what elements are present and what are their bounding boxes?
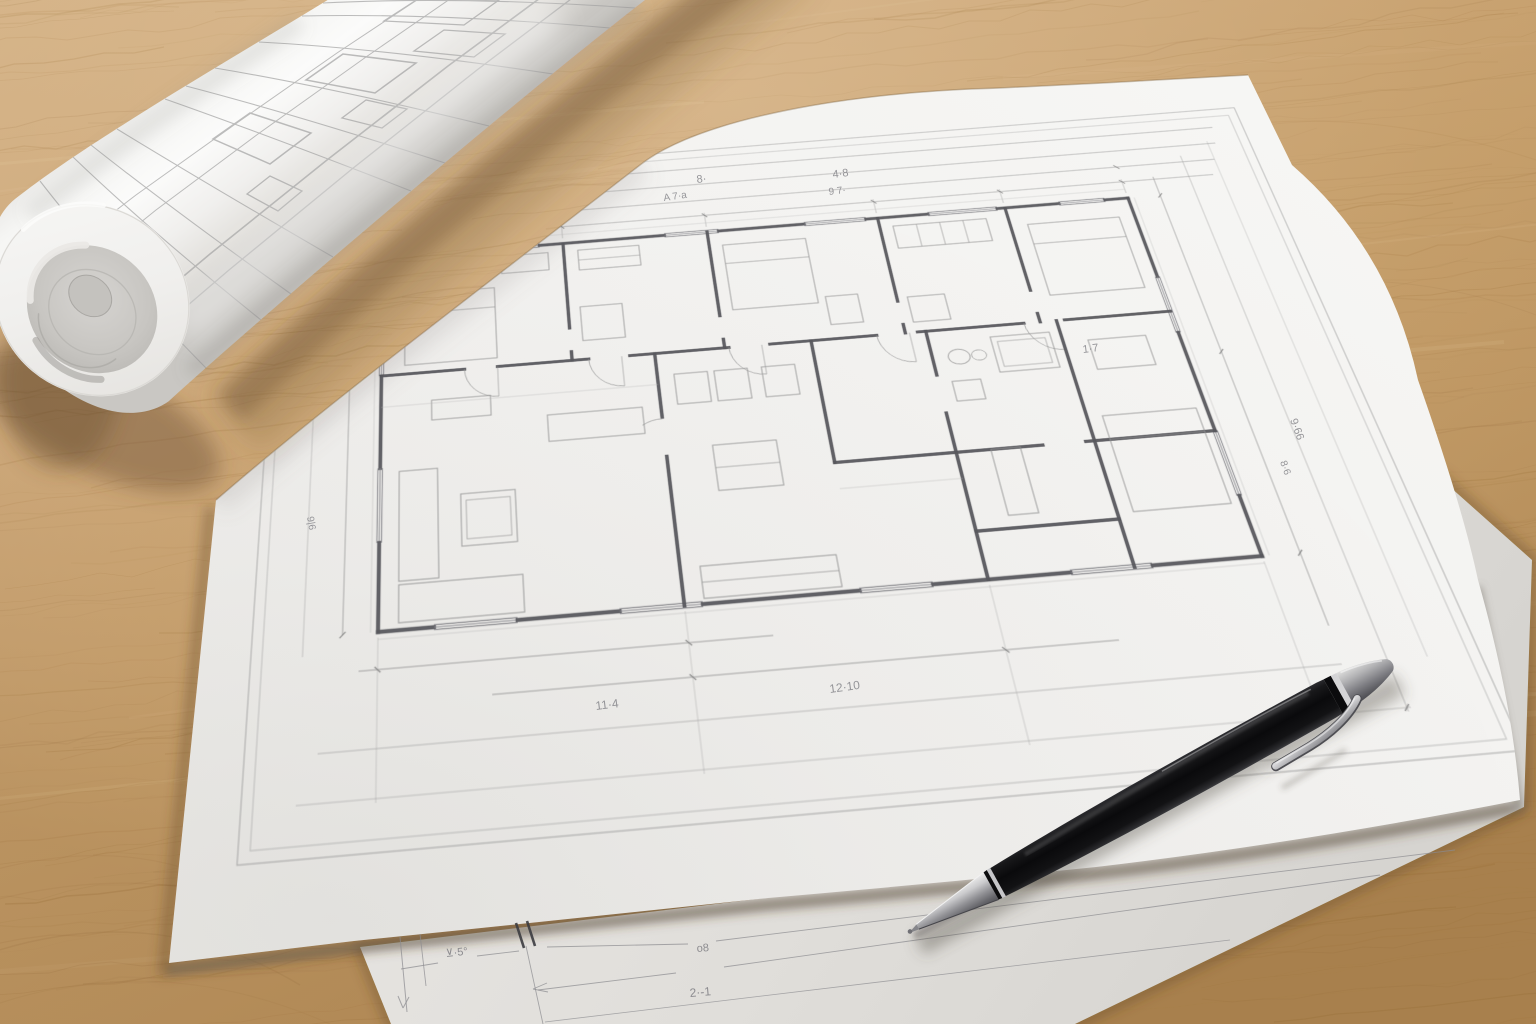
svg-text:o8: o8 xyxy=(696,942,709,955)
svg-text:A 7·a: A 7·a xyxy=(663,190,688,204)
svg-text:1·7: 1·7 xyxy=(1082,342,1099,356)
svg-text:12·10: 12·10 xyxy=(828,678,861,696)
svg-text:4·8: 4·8 xyxy=(832,167,849,181)
svg-text:8·: 8· xyxy=(696,173,707,186)
svg-text:⊻·5°: ⊻·5° xyxy=(445,946,468,960)
svg-text:9 7·: 9 7· xyxy=(828,185,846,198)
svg-text:9·66: 9·66 xyxy=(1287,417,1306,442)
svg-text:8·6: 8·6 xyxy=(1277,459,1292,477)
svg-text:9|6: 9|6 xyxy=(304,516,317,532)
svg-text:11·4: 11·4 xyxy=(595,696,620,713)
svg-text:2·-1: 2·-1 xyxy=(689,984,712,1000)
